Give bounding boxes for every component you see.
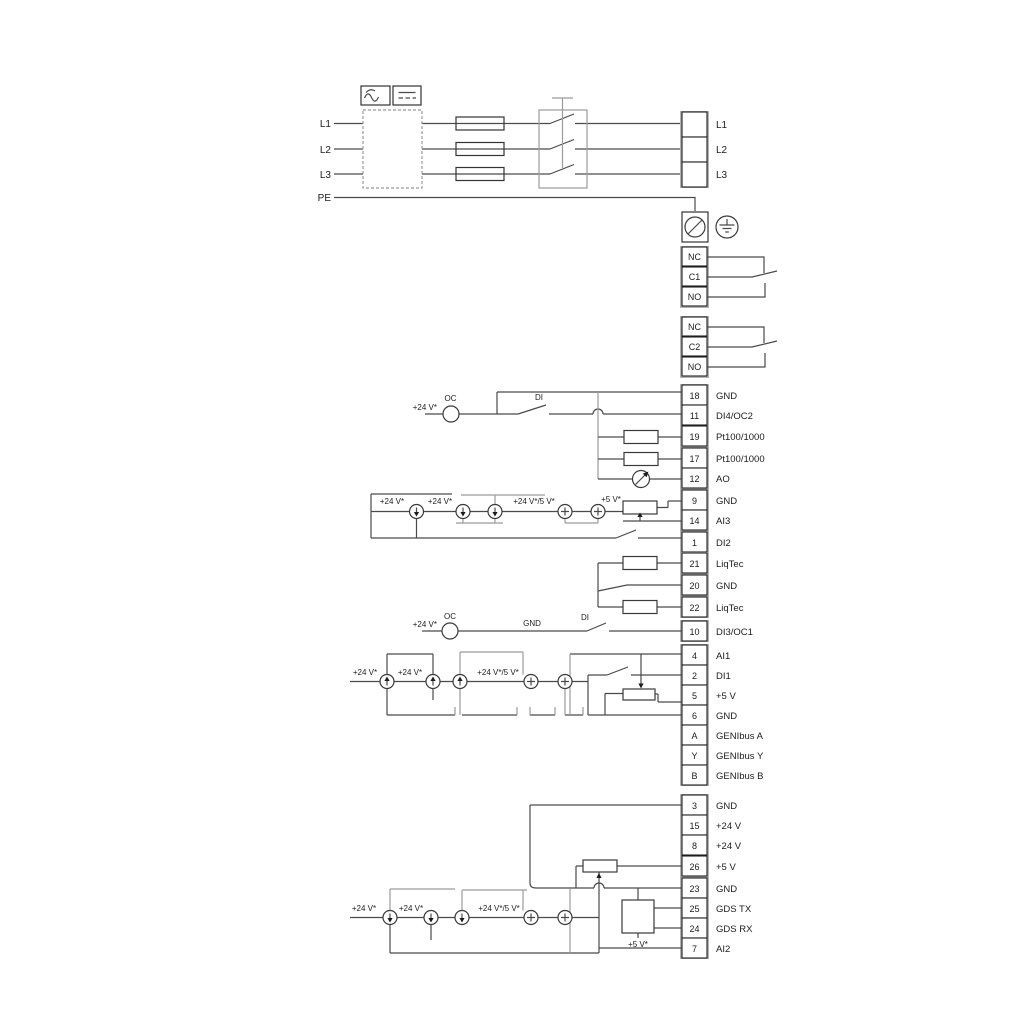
terminal-22-label: LiqTec [716, 603, 744, 614]
plus24v-label: +24 V* [413, 403, 437, 412]
terminal-y-number: Y [691, 751, 697, 761]
liqtec-resistor-2 [623, 601, 657, 614]
plus24v-label: +24 V* [398, 668, 422, 677]
terminal-17-label: Pt100/1000 [716, 454, 765, 465]
label-l2-in: L2 [320, 145, 332, 156]
relay1-block: NC C1 NO [680, 246, 777, 308]
terminal-6-number: 6 [692, 711, 697, 721]
dc-symbol-box [393, 86, 421, 105]
open-collector-icon [442, 623, 458, 639]
group-a-wiring: +24 V* OC DI [413, 392, 682, 488]
label-pe-in: PE [318, 193, 332, 204]
relay1-contact-symbol [707, 257, 777, 297]
terminal-12-label: AO [716, 474, 730, 485]
terminal-24-label: GDS RX [716, 924, 753, 935]
terminal-group-c: 3 15 8 26 23 25 24 7 GND +24 V +24 V +5 … [680, 794, 753, 959]
ai1-potentiometer [623, 689, 655, 700]
relay2-block: NC C2 NO [680, 316, 777, 378]
terminal-a-number: A [691, 731, 697, 741]
terminal-9-label: GND [716, 496, 737, 507]
terminal-y-label: GENIbus Y [716, 751, 764, 762]
terminal-21-label: LiqTec [716, 559, 744, 570]
terminal-14-label: AI3 [716, 516, 730, 527]
terminal-group-b: 4 2 5 6 A Y B AI1 DI1 +5 V GND GENIbus A… [680, 644, 764, 786]
terminal-8-label: +24 V [716, 841, 742, 852]
ai2-sensor-section: +24 V* +24 V* +24 V*/5 V* +5 V* [350, 805, 682, 953]
ai3-sensor-section: +24 V* +24 V* +24 V*/5 V* +5 V* [371, 494, 682, 538]
relay2-no: NO [688, 362, 702, 372]
terminal-5-label: +5 V [716, 691, 736, 702]
ai1-sensor-section: +24 V* +24 V* +24 V*/5 V* [350, 652, 682, 715]
label-l3-out: L3 [716, 170, 728, 181]
plus24v-label: +24 V* [380, 497, 404, 506]
plus24v-5v-label: +24 V*/5 V* [513, 497, 555, 506]
relay1-c1: C1 [689, 272, 701, 282]
terminal-7-number: 7 [692, 944, 697, 954]
terminal-group-a: 18 11 19 17 12 9 14 1 GND DI4/OC2 Pt100/… [680, 384, 765, 553]
terminal-19-label: Pt100/1000 [716, 432, 765, 443]
terminal-cell-l2 [682, 137, 707, 162]
plus24v-5v-label: +24 V*/5 V* [478, 904, 520, 913]
terminal-25-number: 25 [689, 904, 699, 914]
terminal-11-label: DI4/OC2 [716, 411, 753, 422]
wiring-diagram-svg: L1 L2 L3 PE L1 L2 L3 [0, 0, 1024, 1024]
ai3-potentiometer [623, 501, 657, 514]
terminal-15-number: 15 [689, 821, 699, 831]
oc-label: OC [444, 612, 456, 621]
terminal-1-number: 1 [692, 538, 697, 548]
terminal-a-label: GENIbus A [716, 731, 764, 742]
terminal-22-number: 22 [689, 603, 699, 613]
power-wires [334, 98, 695, 211]
terminal-11-number: 11 [690, 411, 699, 421]
mains-terminal-block: L1 L2 L3 [680, 111, 728, 188]
terminal-10-number: 10 [689, 627, 699, 637]
terminal-26-number: 26 [689, 862, 699, 872]
plus24v-label: +24 V* [353, 668, 377, 677]
terminal-8-number: 8 [692, 841, 697, 851]
terminal-20-label: GND [716, 581, 737, 592]
plus24v-label: +24 V* [399, 904, 423, 913]
gnd-label: GND [523, 619, 541, 628]
oc-label: OC [445, 394, 457, 403]
plus5v-label: +5 V* [601, 495, 621, 504]
terminal-2-label: DI1 [716, 671, 731, 682]
terminal-6-label: GND [716, 711, 737, 722]
terminal-4-label: AI1 [716, 651, 730, 662]
pt100-resistor-1 [624, 431, 658, 444]
liqtec-resistor-1 [623, 557, 657, 570]
open-collector-icon [443, 406, 459, 422]
plus24v-label: +24 V* [428, 497, 452, 506]
gds-sensor-box [622, 900, 654, 933]
terminal-24-number: 24 [689, 924, 699, 934]
terminal-14-number: 14 [689, 516, 699, 526]
plus24v-5v-label: +24 V*/5 V* [477, 668, 519, 677]
terminal-3-number: 3 [692, 801, 697, 811]
wiring-diagram: L1 L2 L3 PE L1 L2 L3 [0, 0, 1024, 1024]
plus5v-label: +5 V* [628, 940, 648, 949]
power-input-labels: L1 L2 L3 PE [318, 119, 332, 204]
plus24v-label: +24 V* [413, 620, 437, 629]
label-l2-out: L2 [716, 145, 728, 156]
terminal-15-label: +24 V [716, 821, 742, 832]
plus24v-label: +24 V* [352, 904, 376, 913]
pe-terminal [682, 212, 738, 242]
terminal-bb-number: B [691, 771, 697, 781]
terminal-26-label: +5 V [716, 862, 736, 873]
terminal-25-label: GDS TX [716, 904, 752, 915]
terminal-23-number: 23 [689, 884, 699, 894]
di-label: DI [535, 393, 543, 402]
terminal-20-number: 20 [689, 581, 699, 591]
terminal-18-label: GND [716, 391, 737, 402]
terminal-5-number: 5 [692, 691, 697, 701]
pt100-resistor-2 [624, 453, 658, 466]
terminal-19-number: 19 [689, 432, 699, 442]
terminal-7-label: AI2 [716, 944, 730, 955]
emc-filter-box [361, 86, 422, 188]
ai2-pot-wiper-arrow [596, 873, 601, 878]
relay1-nc: NC [688, 252, 701, 262]
terminal-21-number: 21 [689, 559, 699, 569]
relay1-no: NO [688, 292, 702, 302]
label-l1-in: L1 [320, 119, 332, 130]
relay2-contact-symbol [707, 327, 777, 367]
ai2-potentiometer [583, 860, 617, 872]
terminal-1-label: DI2 [716, 538, 731, 549]
filter-dashed-box [363, 110, 422, 188]
terminal-17-number: 17 [689, 454, 699, 464]
ai1-pot-wiper-arrow [638, 684, 643, 689]
terminal-bb-label: GENIbus B [716, 771, 764, 782]
terminal-cell-l1 [682, 112, 707, 137]
label-l3-in: L3 [320, 170, 332, 181]
relay2-c2: C2 [689, 342, 701, 352]
terminal-group-liqtec: 21 20 22 LiqTec GND LiqTec [598, 552, 744, 618]
label-l1-out: L1 [716, 120, 728, 131]
di-label: DI [581, 613, 589, 622]
terminal-3-label: GND [716, 801, 737, 812]
terminal-4-number: 4 [692, 651, 697, 661]
terminal-10-label: DI3/OC1 [716, 627, 753, 638]
terminal-cell-l3 [682, 162, 707, 187]
relay2-nc: NC [688, 322, 701, 332]
terminal-23-label: GND [716, 884, 737, 895]
terminal-9-number: 9 [692, 496, 697, 506]
terminal-18-number: 18 [689, 391, 699, 401]
terminal-2-number: 2 [692, 671, 697, 681]
terminal-12-number: 12 [689, 474, 699, 484]
